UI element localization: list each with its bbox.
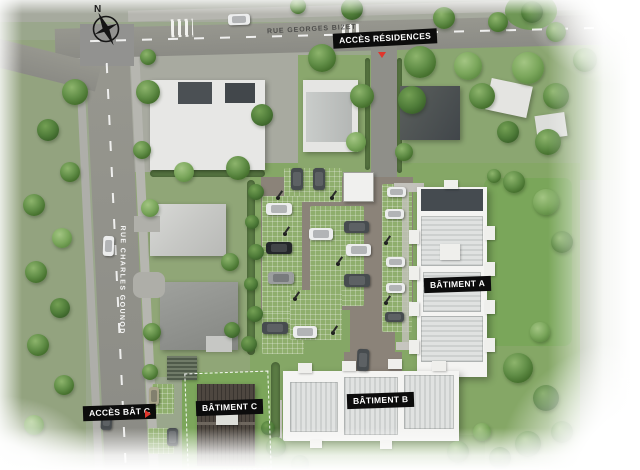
tree [521, 1, 543, 23]
batiment-a-balcony [409, 266, 419, 280]
tree [573, 48, 597, 72]
tree [350, 84, 374, 108]
batiment-a-balcony [485, 226, 495, 240]
tree [398, 86, 426, 114]
tree [52, 228, 72, 248]
car [313, 168, 325, 190]
tree [27, 334, 49, 356]
batiment-b-balcony [388, 359, 402, 369]
tree [23, 194, 45, 216]
tree [530, 322, 550, 342]
tree [497, 121, 519, 143]
tree [241, 336, 257, 352]
car [357, 349, 370, 371]
hedge-access-west [365, 58, 370, 170]
street-lamp [384, 301, 388, 305]
batiment-b-label: BÂTIMENT B [347, 392, 415, 409]
tree [454, 52, 482, 80]
access-bat-c-arrow-icon [145, 410, 151, 418]
tree [535, 129, 561, 155]
car [149, 387, 159, 405]
batiment-a-label: BÂTIMENT A [424, 276, 492, 293]
access-residences-arrow-icon [378, 52, 386, 58]
batiment-c-label: BÂTIMENT C [196, 399, 264, 416]
tree [503, 353, 533, 383]
tree [395, 143, 413, 161]
site-plan-aerial-view: RUE GEORGES BIZET RUE CHARLES GOUNOD N A… [0, 0, 640, 470]
batiment-a-roof-panel-3 [421, 316, 483, 362]
crosswalk-west [171, 19, 194, 38]
batiment-b-roof-panel-1 [290, 382, 338, 432]
hedge-west-boundary [247, 180, 255, 355]
batiment-a-balcony [485, 300, 495, 314]
car [266, 203, 292, 215]
tree [488, 12, 508, 32]
tree [551, 421, 573, 443]
road-acces-residences-driveway [371, 42, 397, 182]
car [344, 274, 370, 287]
street-lamp [384, 241, 388, 245]
tree [224, 322, 240, 338]
car [387, 187, 406, 197]
car [386, 257, 405, 267]
batiment-c-plot-boundary [184, 371, 271, 470]
tree [346, 132, 366, 152]
tree [244, 277, 258, 291]
tree [515, 431, 541, 457]
tree [174, 162, 194, 182]
existing-building-northwest-dark-roof-2 [225, 83, 255, 103]
tree [551, 231, 573, 253]
tree [447, 441, 469, 463]
refuse-shelter [343, 172, 374, 202]
street-lamp [336, 262, 340, 266]
car [385, 312, 404, 322]
driveway-west-1 [134, 216, 160, 232]
tree [473, 423, 491, 441]
tree [433, 7, 455, 29]
batiment-b-balcony [380, 441, 392, 449]
street-lamp [276, 196, 280, 200]
tree [248, 244, 264, 260]
street-lamp [330, 196, 334, 200]
tree [140, 49, 156, 65]
tree [487, 169, 501, 183]
tree [251, 104, 273, 126]
tree [54, 375, 74, 395]
car [268, 272, 294, 284]
car [266, 242, 292, 254]
batiment-b-balcony [432, 361, 446, 371]
car [346, 244, 371, 256]
tree [546, 22, 566, 42]
existing-building-northwest-dark-roof-1 [178, 82, 212, 104]
car [344, 221, 369, 233]
batiment-a-balcony [409, 302, 419, 316]
tree [308, 44, 336, 72]
existing-house-north-center-roof [306, 92, 352, 142]
batiment-b-balcony [298, 363, 312, 373]
tree [533, 189, 559, 215]
tree [25, 261, 47, 283]
street-label-rue-charles-gounod: RUE CHARLES GOUNOD [118, 225, 126, 325]
tree [503, 171, 525, 193]
tree [37, 119, 59, 141]
compass-icon: N [82, 0, 128, 50]
tree [226, 156, 250, 180]
tree [404, 46, 436, 78]
car [228, 14, 250, 26]
batiment-a-balcony [409, 340, 419, 354]
tree [133, 141, 151, 159]
tree [512, 52, 544, 84]
car [103, 236, 115, 256]
batiment-b-balcony [310, 440, 322, 448]
tree [489, 447, 511, 469]
car [262, 322, 288, 334]
batiment-a-roof-structure [440, 244, 460, 260]
tree [245, 215, 259, 229]
tree [543, 83, 569, 109]
tree [291, 455, 309, 470]
street-lamp [293, 297, 297, 301]
tree [62, 79, 88, 105]
batiment-a-balcony [485, 262, 495, 276]
tree [24, 415, 44, 435]
batiment-a-balcony [409, 230, 419, 244]
north-label: N [94, 4, 101, 15]
tree [221, 253, 239, 271]
tree [469, 83, 495, 109]
batiment-b-balcony [342, 361, 356, 371]
existing-house-west-1 [150, 204, 226, 256]
tree [142, 364, 158, 380]
car [309, 228, 333, 240]
tree [141, 199, 159, 217]
street-lamp [331, 331, 335, 335]
tree [248, 184, 264, 200]
tree [247, 306, 263, 322]
tree [50, 298, 70, 318]
existing-house-west-2-garage [206, 336, 232, 352]
car [386, 283, 405, 293]
tree [533, 385, 559, 411]
tree [143, 323, 161, 341]
tree [60, 162, 80, 182]
batiment-a-balcony [485, 338, 495, 352]
street-lamp [283, 232, 287, 236]
batiment-a-entrance-north [444, 180, 458, 189]
car [167, 428, 178, 446]
car [291, 168, 303, 190]
car [293, 326, 317, 338]
tree [136, 80, 160, 104]
driveway-west-2 [133, 272, 165, 298]
batiment-a-dark-roof-cap [421, 189, 483, 211]
car [385, 209, 404, 219]
